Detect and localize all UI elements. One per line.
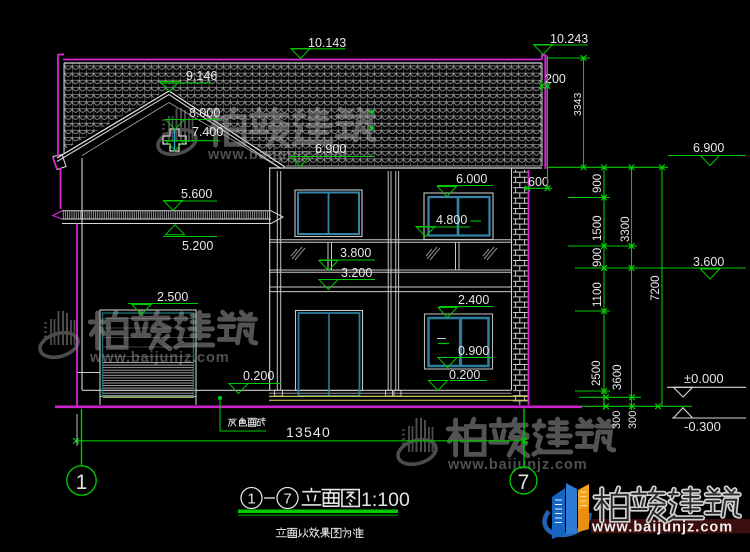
svg-text:1: 1 bbox=[76, 471, 88, 494]
svg-text:±0.000: ±0.000 bbox=[684, 371, 724, 386]
svg-text:7: 7 bbox=[518, 471, 530, 494]
svg-text:1:100: 1:100 bbox=[361, 489, 410, 511]
svg-text:7.400: 7.400 bbox=[192, 125, 223, 139]
svg-text:10.243: 10.243 bbox=[550, 32, 588, 46]
svg-text:13540: 13540 bbox=[286, 424, 331, 440]
svg-text:1: 1 bbox=[247, 491, 255, 508]
svg-text:3343: 3343 bbox=[572, 92, 584, 116]
svg-text:-0.300: -0.300 bbox=[684, 419, 721, 434]
svg-text:0.900: 0.900 bbox=[458, 344, 489, 358]
svg-text:3.200: 3.200 bbox=[341, 266, 372, 280]
svg-text:7200: 7200 bbox=[650, 275, 662, 301]
svg-text:2500: 2500 bbox=[591, 360, 603, 386]
svg-text:1100: 1100 bbox=[592, 282, 604, 307]
svg-text:3300: 3300 bbox=[620, 216, 632, 242]
svg-text:900: 900 bbox=[592, 174, 604, 193]
svg-text:900: 900 bbox=[592, 248, 604, 267]
svg-text:200: 200 bbox=[545, 72, 566, 86]
svg-text:6.900: 6.900 bbox=[315, 142, 346, 156]
svg-text:2.400: 2.400 bbox=[458, 293, 489, 307]
svg-text:300: 300 bbox=[627, 411, 639, 429]
svg-text:6.900: 6.900 bbox=[693, 141, 724, 155]
svg-text:1500: 1500 bbox=[592, 215, 604, 241]
svg-text:www.baijunjz.com: www.baijunjz.com bbox=[591, 520, 733, 536]
svg-text:3600: 3600 bbox=[612, 364, 624, 390]
svg-text:300: 300 bbox=[611, 411, 623, 429]
svg-text:8.000: 8.000 bbox=[189, 106, 220, 120]
svg-text:3.800: 3.800 bbox=[340, 246, 371, 260]
svg-text:5.200: 5.200 bbox=[182, 239, 213, 253]
svg-text:5.600: 5.600 bbox=[181, 187, 212, 201]
svg-text:7: 7 bbox=[283, 491, 291, 508]
svg-text:3.600: 3.600 bbox=[693, 255, 724, 269]
svg-text:2.500: 2.500 bbox=[157, 290, 188, 304]
svg-text:0.200: 0.200 bbox=[243, 369, 274, 383]
svg-text:4.800: 4.800 bbox=[436, 213, 467, 227]
svg-text:6.000: 6.000 bbox=[456, 172, 487, 186]
svg-text:0.200: 0.200 bbox=[449, 368, 480, 382]
svg-text:9.146: 9.146 bbox=[186, 69, 217, 83]
svg-text:10.143: 10.143 bbox=[308, 36, 346, 50]
